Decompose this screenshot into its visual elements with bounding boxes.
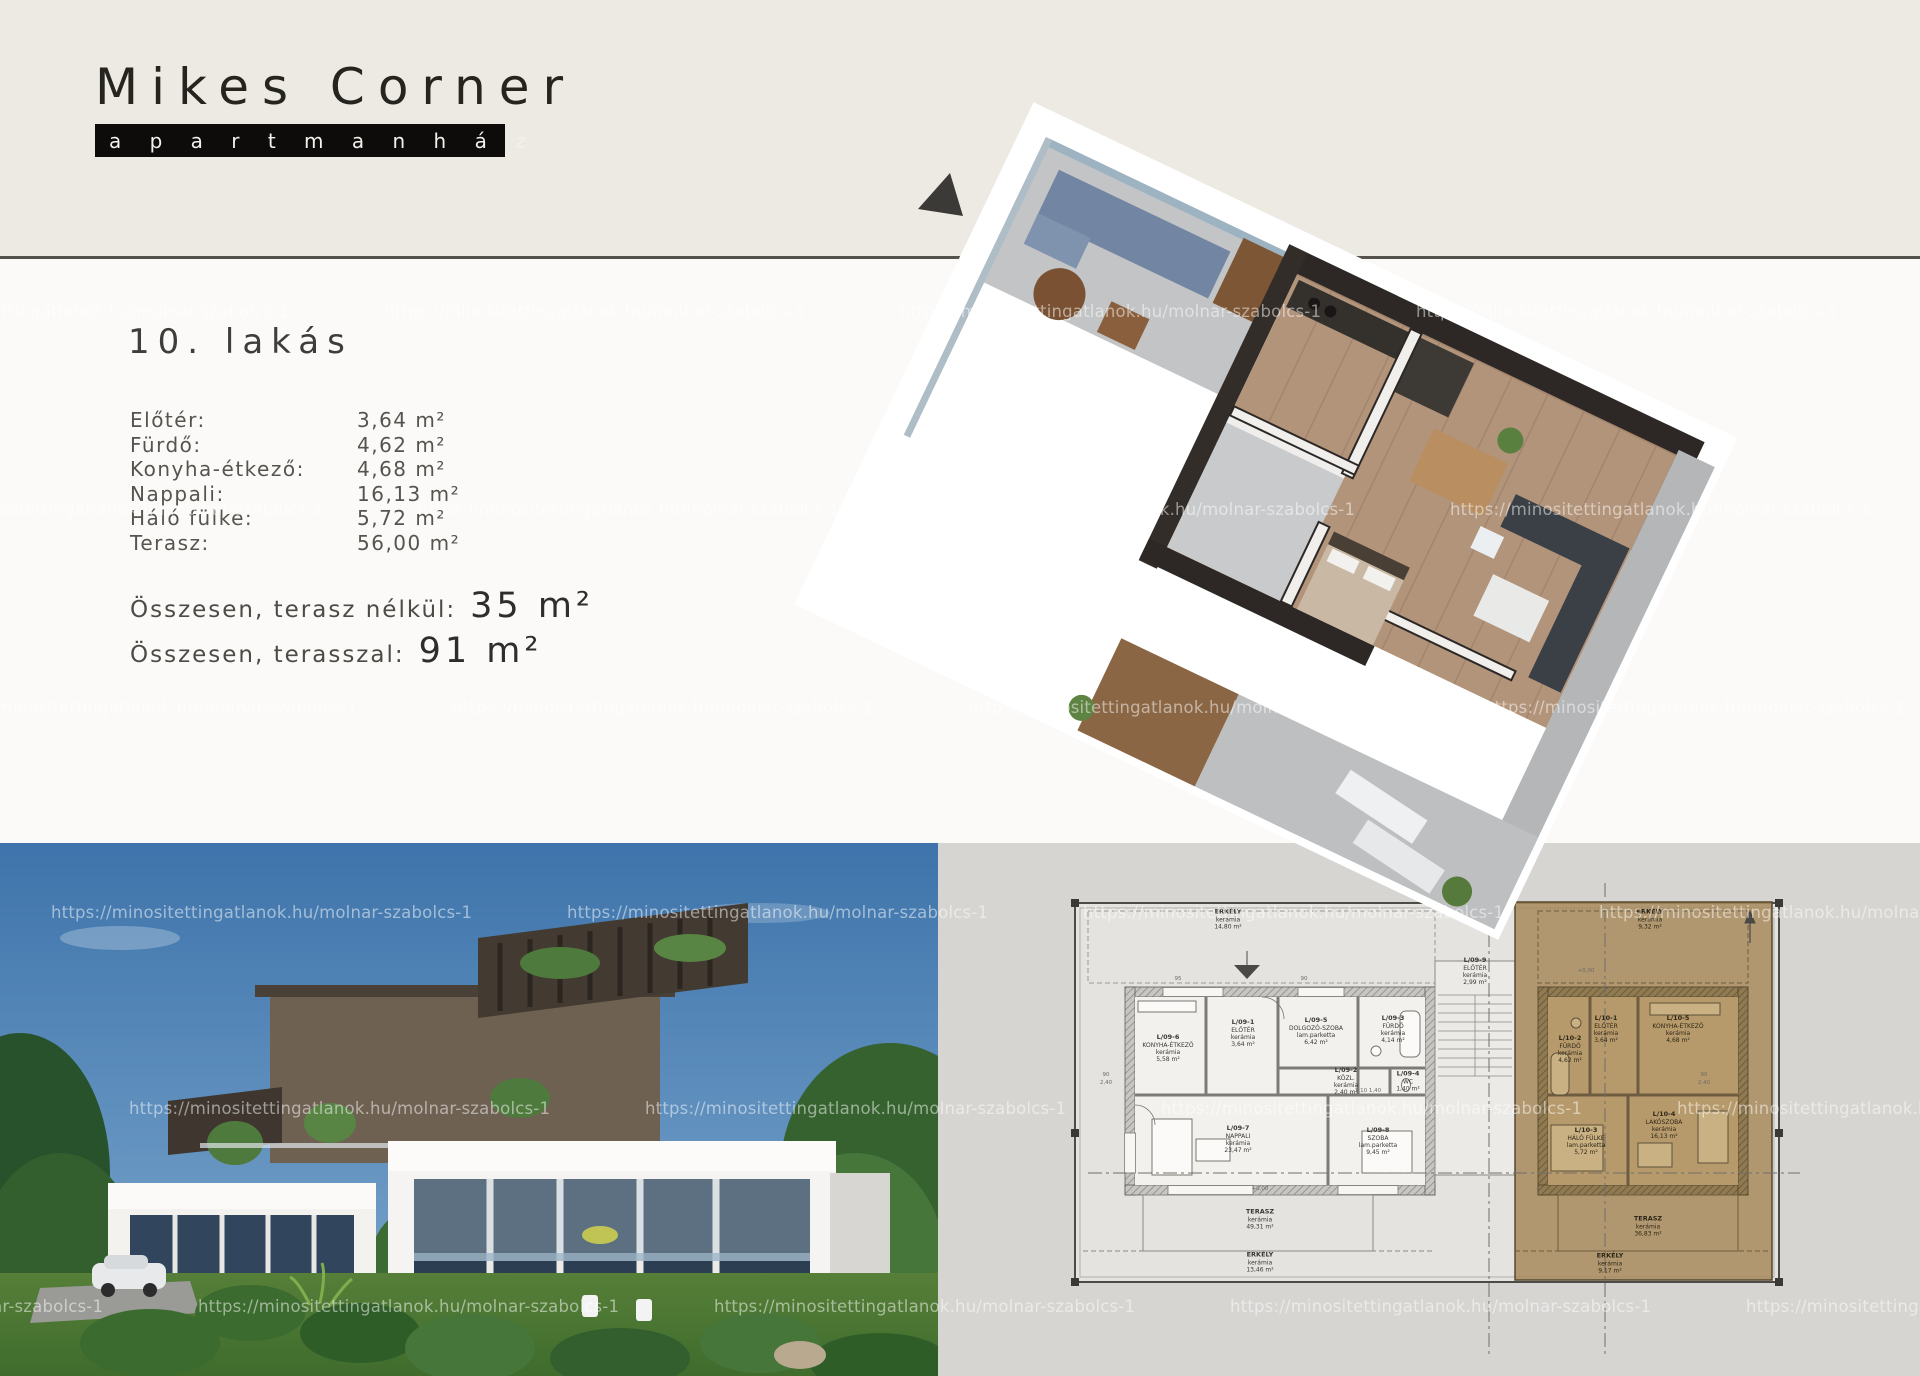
room-label-line: L/10-2 [1558, 1035, 1582, 1043]
room-label: L/09-4WC1,40 m² [1396, 1070, 1420, 1092]
room-label-line: SZOBA [1359, 1134, 1397, 1141]
logo-title: Mikes Corner [95, 58, 515, 116]
room-label-line: kerámia [1246, 1259, 1273, 1266]
room-label: L/09-6KONYHA-ÉTKEZŐkerámia5,58 m² [1142, 1034, 1193, 1063]
room-label-line: KONYHA-ÉTKEZŐ [1142, 1041, 1193, 1048]
room-label-line: ELŐTÉR [1231, 1026, 1255, 1033]
area-value: 4,62 m² [357, 433, 446, 458]
room-label-line: kerámia [1646, 1125, 1683, 1132]
room-label: L/10-3HÁLÓ FÜLKElam.parketta5,72 m² [1567, 1127, 1605, 1156]
area-row: Nappali:16,13 m² [130, 482, 550, 507]
room-label-line: kerámia [1231, 1033, 1255, 1040]
room-label-line: 6,42 m² [1289, 1038, 1343, 1045]
area-value: 5,72 m² [357, 506, 446, 531]
room-label-line: FÜRDŐ [1381, 1022, 1405, 1029]
room-label-line: kerámia [1246, 1216, 1274, 1223]
room-label: L/09-5DOLGOZÓ-SZOBAlam.parketta6,42 m² [1289, 1017, 1343, 1046]
total-label: Összesen, terasz nélkül: [130, 597, 456, 623]
room-label: L/09-7NAPPALIkerámia23,47 m² [1224, 1125, 1251, 1154]
floorplan-3d-render [600, 0, 1920, 980]
area-row: Előtér:3,64 m² [130, 408, 550, 433]
room-label-line: L/09-3 [1381, 1015, 1405, 1023]
room-label-line: WC [1396, 1078, 1420, 1085]
room-label-line: TERASZ [1246, 1208, 1274, 1216]
room-label: TERASZkerámia49,31 m² [1246, 1208, 1274, 1230]
area-label: Konyha-étkező: [130, 457, 357, 482]
triangle-marker-icon [918, 173, 963, 216]
logo-bar: a p a r t m a n h á z [95, 124, 505, 157]
room-label-line: 3,64 m² [1594, 1036, 1618, 1043]
room-label: L/10-5KONYHA-ÉTKEZŐkerámia4,68 m² [1652, 1015, 1703, 1044]
area-row: Háló fülke:5,72 m² [130, 506, 550, 531]
total-value: 91 m² [419, 631, 543, 671]
garden [0, 1255, 938, 1376]
room-label-line: 36,83 m² [1634, 1230, 1662, 1237]
room-label: L/10-4LAKÓSZOBAkerámia16,13 m² [1646, 1111, 1683, 1140]
room-label-line: ERKÉLY [1246, 1251, 1273, 1259]
room-label-line: kerámia [1652, 1029, 1703, 1036]
room-label-line: lam.parketta [1289, 1031, 1343, 1038]
room-area-list: Előtér:3,64 m²Fürdő:4,62 m²Konyha-étkező… [130, 408, 550, 556]
room-label-line: KÖZL. [1334, 1074, 1358, 1081]
logo: Mikes Corner a p a r t m a n h á z [95, 58, 515, 157]
room-label-line: 5,72 m² [1567, 1148, 1605, 1155]
room-label-line: kerámia [1597, 1260, 1624, 1267]
room-label-line: 9,17 m² [1597, 1267, 1624, 1274]
dimension-text: 2,40 [1698, 1080, 1710, 1086]
room-label-line: 3,64 m² [1231, 1040, 1255, 1047]
room-label-line: 1,40 m² [1396, 1085, 1420, 1092]
logo-subtitle: a p a r t m a n h á z [95, 129, 537, 153]
room-label-line: L/09-1 [1231, 1019, 1255, 1027]
flyer-page: Mikes Corner a p a r t m a n h á z 10. l… [0, 0, 1920, 1376]
room-label-line: 5,58 m² [1142, 1055, 1193, 1062]
room-label-line: FÜRDŐ [1558, 1042, 1582, 1049]
dimension-text: +0,00 [1252, 1186, 1269, 1192]
room-label-line: ERKÉLY [1597, 1252, 1624, 1260]
room-label-line: L/10-5 [1652, 1015, 1703, 1023]
room-label-line: ELŐTÉR [1594, 1022, 1618, 1029]
area-value: 4,68 m² [357, 457, 446, 482]
room-label-line: L/09-8 [1359, 1127, 1397, 1135]
room-label-line: 4,14 m² [1381, 1036, 1405, 1043]
room-label-line: 4,68 m² [1652, 1036, 1703, 1043]
area-label: Terasz: [130, 531, 357, 556]
room-label-line: kerámia [1634, 1223, 1662, 1230]
room-label-line: L/10-1 [1594, 1015, 1618, 1023]
area-label: Nappali: [130, 482, 357, 507]
room-label-line: KONYHA-ÉTKEZŐ [1652, 1022, 1703, 1029]
room-label: TERASZkerámia36,83 m² [1634, 1215, 1662, 1237]
dimension-text: 2,40 [1100, 1080, 1112, 1086]
room-label-line: L/09-7 [1224, 1125, 1251, 1133]
render-sheet [794, 102, 1737, 940]
room-label: L/09-8SZOBAlam.parketta9,45 m² [1359, 1127, 1397, 1156]
room-label-line: LAKÓSZOBA [1646, 1118, 1683, 1125]
room-label-line: 13,46 m² [1246, 1266, 1273, 1273]
room-label-line: HÁLÓ FÜLKE [1567, 1134, 1605, 1141]
room-label-line: NAPPALI [1224, 1132, 1251, 1139]
area-label: Előtér: [130, 408, 357, 433]
rock [774, 1341, 826, 1369]
watermark-text: https://minositettingatlanok.hu/molnar-s… [0, 698, 357, 717]
room-label-line: 49,31 m² [1246, 1223, 1274, 1230]
room-label-line: DOLGOZÓ-SZOBA [1289, 1024, 1343, 1031]
room-label-line: 23,47 m² [1224, 1146, 1251, 1153]
room-label: L/09-1ELŐTÉRkerámia3,64 m² [1231, 1019, 1255, 1048]
area-row: Terasz:56,00 m² [130, 531, 550, 556]
dimension-text: 90 [1701, 1072, 1708, 1078]
room-label: ERKÉLYkerámia13,46 m² [1246, 1251, 1273, 1273]
room-label-line: L/09-2 [1334, 1067, 1358, 1075]
area-value: 3,64 m² [357, 408, 446, 433]
total-line: Összesen, terasz nélkül:35 m² [130, 586, 690, 631]
room-label-line: 4,62 m² [1558, 1056, 1582, 1063]
total-line: Összesen, terasszal:91 m² [130, 631, 690, 676]
room-label-line: kerámia [1594, 1029, 1618, 1036]
room-label-line: kerámia [1381, 1029, 1405, 1036]
area-row: Konyha-étkező:4,68 m² [130, 457, 550, 482]
dimension-text: 90 [1103, 1072, 1110, 1078]
room-label-line: kerámia [1224, 1139, 1251, 1146]
room-label-line: L/09-5 [1289, 1017, 1343, 1025]
room-label-line: L/09-6 [1142, 1034, 1193, 1042]
dimension-text: 2,10 1,40 [1355, 1088, 1381, 1094]
watermark-text: https://minositettingatlanok.hu/molnar-s… [0, 302, 289, 321]
total-value: 35 m² [470, 586, 594, 626]
total-label: Összesen, terasszal: [130, 642, 405, 668]
totals-block: Összesen, terasz nélkül:35 m²Összesen, t… [130, 586, 690, 676]
room-label-line: lam.parketta [1359, 1141, 1397, 1148]
room-label-line: kerámia [1558, 1049, 1582, 1056]
area-row: Fürdő:4,62 m² [130, 433, 550, 458]
room-label-line: kerámia [1142, 1048, 1193, 1055]
room-label-line: 16,13 m² [1646, 1132, 1683, 1139]
room-label: L/10-2FÜRDŐkerámia4,62 m² [1558, 1035, 1582, 1064]
room-label: L/09-3FÜRDŐkerámia4,14 m² [1381, 1015, 1405, 1044]
area-label: Háló fülke: [130, 506, 357, 531]
area-label: Fürdő: [130, 433, 357, 458]
room-label-line: L/10-4 [1646, 1111, 1683, 1119]
room-label-line: lam.parketta [1567, 1141, 1605, 1148]
apartment-title: 10. lakás [128, 322, 353, 362]
area-value: 16,13 m² [357, 482, 460, 507]
room-label-line: L/09-4 [1396, 1070, 1420, 1078]
area-value: 56,00 m² [357, 531, 460, 556]
room-label: ERKÉLYkerámia9,17 m² [1597, 1252, 1624, 1274]
room-label-line: TERASZ [1634, 1215, 1662, 1223]
room-label-line: 9,45 m² [1359, 1148, 1397, 1155]
room-label: L/10-1ELŐTÉRkerámia3,64 m² [1594, 1015, 1618, 1044]
room-label-line: L/10-3 [1567, 1127, 1605, 1135]
